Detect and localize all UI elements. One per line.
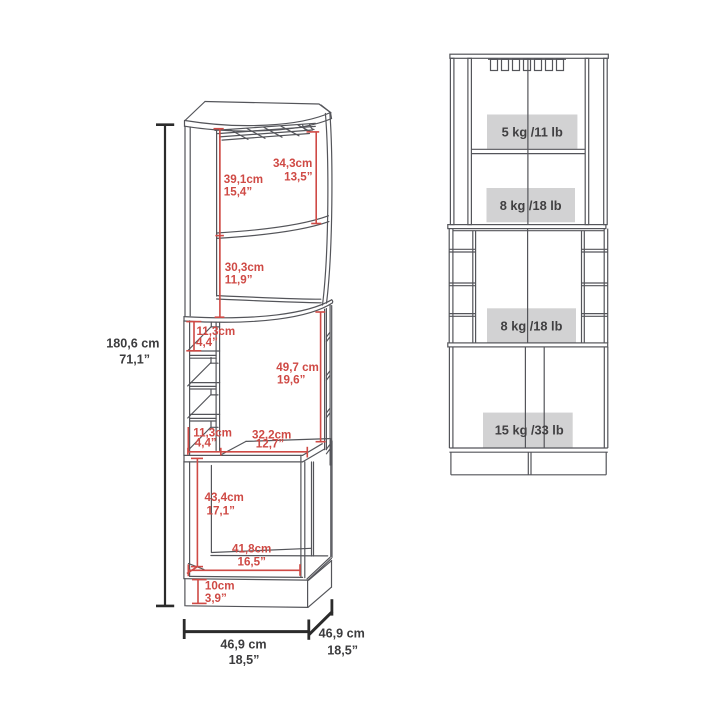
svg-text:4,4”: 4,4” bbox=[196, 336, 218, 349]
svg-text:46,9 cm: 46,9 cm bbox=[220, 637, 266, 651]
svg-text:43,4cm: 43,4cm bbox=[205, 491, 244, 504]
svg-text:8 kg /18 lb: 8 kg /18 lb bbox=[500, 198, 562, 213]
svg-text:16,5”: 16,5” bbox=[238, 556, 266, 569]
svg-text:71,1”: 71,1” bbox=[119, 353, 150, 367]
svg-text:19,6”: 19,6” bbox=[277, 373, 305, 386]
svg-text:5 kg /11 lb: 5 kg /11 lb bbox=[502, 125, 563, 140]
svg-text:12,7”: 12,7” bbox=[256, 438, 284, 451]
svg-text:4,4”: 4,4” bbox=[195, 436, 217, 449]
svg-text:17,1”: 17,1” bbox=[207, 505, 235, 518]
svg-text:41,8cm: 41,8cm bbox=[232, 543, 271, 556]
svg-text:49,7 cm: 49,7 cm bbox=[276, 361, 319, 374]
svg-text:3,9”: 3,9” bbox=[205, 592, 227, 605]
svg-text:10cm: 10cm bbox=[205, 579, 235, 592]
svg-text:15 kg /33 lb: 15 kg /33 lb bbox=[495, 423, 564, 438]
svg-text:180,6 cm: 180,6 cm bbox=[106, 337, 159, 351]
svg-text:39,1cm: 39,1cm bbox=[224, 173, 263, 186]
svg-text:8 kg /18 lb: 8 kg /18 lb bbox=[501, 318, 563, 333]
svg-text:34,3cm: 34,3cm bbox=[273, 157, 312, 170]
svg-text:15,4”: 15,4” bbox=[224, 186, 252, 199]
svg-text:18,5”: 18,5” bbox=[327, 643, 358, 657]
svg-text:11,9”: 11,9” bbox=[225, 273, 253, 286]
svg-text:46,9 cm: 46,9 cm bbox=[319, 626, 365, 640]
svg-text:18,5”: 18,5” bbox=[229, 653, 260, 667]
svg-text:13,5”: 13,5” bbox=[284, 170, 312, 183]
svg-text:30,3cm: 30,3cm bbox=[225, 261, 264, 274]
